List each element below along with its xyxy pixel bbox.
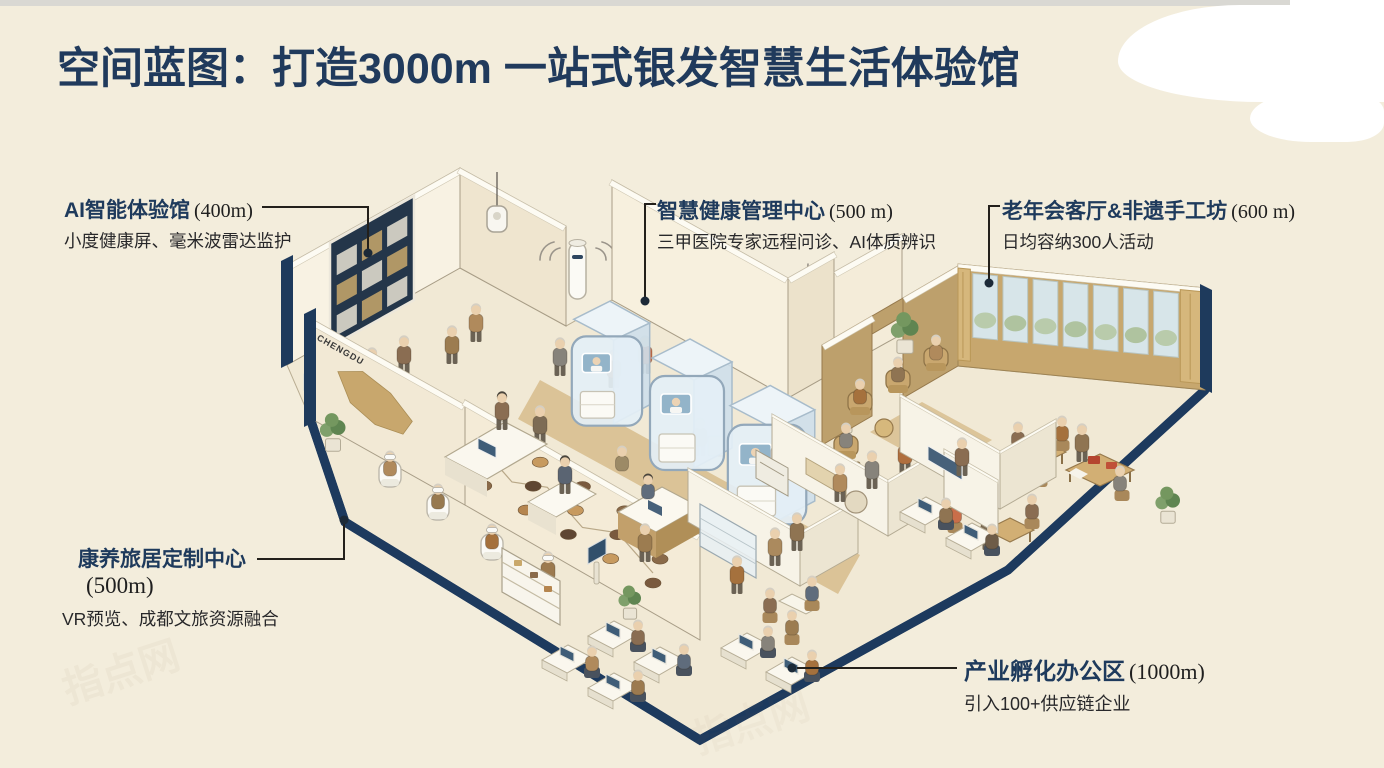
zone-area-label: (1000m) — [1129, 659, 1205, 684]
slide-canvas: 空间蓝图：打造3000m 一站式银发智慧生活体验馆 CHENGDU AI智能体验… — [0, 0, 1384, 768]
callout-office-incubator: 产业孵化办公区(1000m) 引入100+供应链企业 — [964, 652, 1205, 716]
zone-desc-label: 小度健康屏、毫米波雷达监护 — [64, 228, 292, 253]
callout-title: 智慧健康管理中心(500 m) — [657, 195, 936, 225]
callout-title: 老年会客厅&非遗手工坊(600 m) — [1002, 195, 1295, 225]
zone-area-label: (400m) — [194, 200, 253, 222]
callout-title: AI智能体验馆(400m) — [64, 194, 292, 224]
callout-ai-experience-hall: AI智能体验馆(400m) 小度健康屏、毫米波雷达监护 — [64, 194, 292, 253]
zone-desc-label: 引入100+供应链企业 — [964, 690, 1205, 716]
zone-name-label: 老年会客厅&非遗手工坊 — [1002, 200, 1227, 223]
callout-lounge-workshop: 老年会客厅&非遗手工坊(600 m) 日均容纳300人活动 — [1002, 195, 1295, 254]
zone-name-label: 康养旅居定制中心 — [78, 543, 279, 573]
zone-name-label: 智慧健康管理中心 — [657, 200, 825, 223]
callout-health-center: 智慧健康管理中心(500 m) 三甲医院专家远程问诊、AI体质辨识 — [657, 195, 936, 254]
zone-name-label: 产业孵化办公区 — [964, 658, 1125, 684]
callout-title: 产业孵化办公区(1000m) — [964, 652, 1205, 686]
zone-desc-label: VR预览、成都文旅资源融合 — [62, 606, 279, 631]
callout-travel-center: 康养旅居定制中心 (500m) VR预览、成都文旅资源融合 — [78, 543, 279, 631]
zone-area-label: (500 m) — [829, 201, 893, 223]
zone-name-label: AI智能体验馆 — [64, 199, 190, 222]
zone-desc-label: 三甲医院专家远程问诊、AI体质辨识 — [657, 229, 936, 254]
zone-area-label: (600 m) — [1231, 201, 1295, 223]
zone-desc-label: 日均容纳300人活动 — [1002, 229, 1295, 254]
zone-area-label: (500m) — [86, 573, 279, 599]
